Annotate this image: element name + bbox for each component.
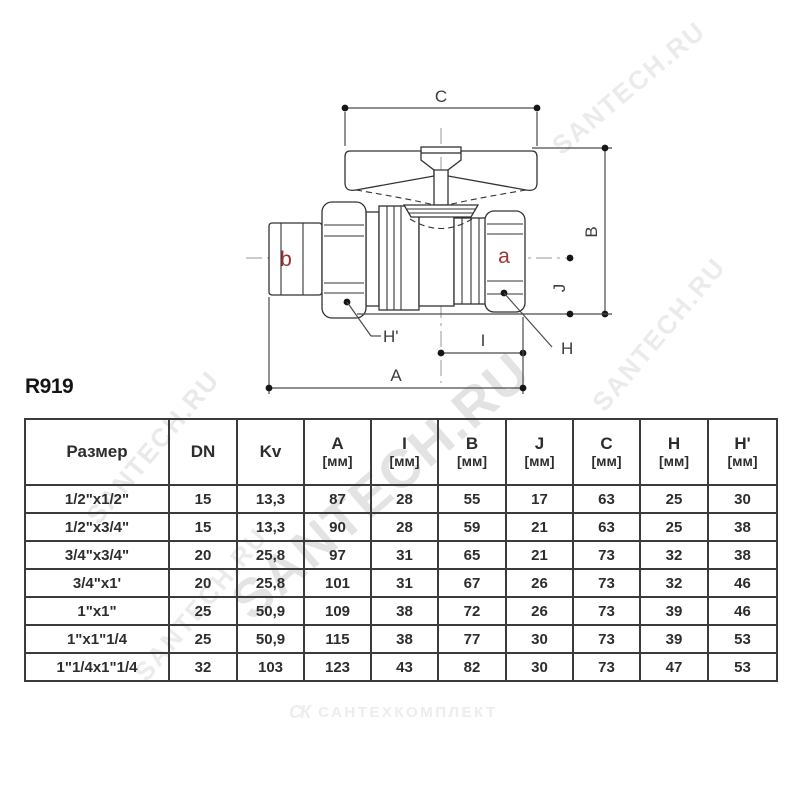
table-cell: 31 [371, 541, 438, 569]
dim-label-j: J [550, 284, 569, 293]
header-label: DN [170, 443, 236, 461]
table-cell: 20 [169, 541, 237, 569]
table-cell: 87 [304, 485, 371, 513]
header-label: B [439, 435, 505, 453]
table-cell: 50,9 [237, 625, 304, 653]
table-cell: 67 [438, 569, 506, 597]
table-cell: 15 [169, 513, 237, 541]
header-cell: I[мм] [371, 419, 438, 485]
table-cell: 38 [371, 597, 438, 625]
table-cell: 1"x1"1/4 [25, 625, 169, 653]
table-cell: 53 [708, 625, 777, 653]
table-cell: 46 [708, 597, 777, 625]
header-unit: [мм] [641, 454, 707, 469]
spec-table: РазмерDNKvA[мм]I[мм]B[мм]J[мм]C[мм]H[мм]… [24, 418, 778, 682]
dim-label-i: I [481, 331, 486, 350]
table-cell: 25 [169, 625, 237, 653]
dim-i: I [438, 331, 527, 356]
table-cell: 38 [371, 625, 438, 653]
table-cell: 1/2"x1/2" [25, 485, 169, 513]
table-cell: 90 [304, 513, 371, 541]
header-label: Размер [26, 443, 168, 461]
port-label-b: b [280, 248, 292, 271]
table-row: 1/2"x1/2"1513,387285517632530 [25, 485, 777, 513]
table-cell: 65 [438, 541, 506, 569]
table-cell: 59 [438, 513, 506, 541]
table-cell: 31 [371, 569, 438, 597]
spec-table-body: 1/2"x1/2"1513,3872855176325301/2"x3/4"15… [25, 485, 777, 681]
table-cell: 30 [708, 485, 777, 513]
table-cell: 109 [304, 597, 371, 625]
table-cell: 15 [169, 485, 237, 513]
dim-label-b: B [582, 226, 601, 237]
header-cell: A[мм] [304, 419, 371, 485]
table-cell: 30 [506, 653, 573, 681]
table-row: 1/2"x3/4"1513,390285921632538 [25, 513, 777, 541]
table-cell: 50,9 [237, 597, 304, 625]
table-cell: 20 [169, 569, 237, 597]
dim-b: B [532, 145, 612, 318]
table-cell: 13,3 [237, 485, 304, 513]
header-label: H' [709, 435, 776, 453]
header-label: A [305, 435, 370, 453]
spec-table-header: РазмерDNKvA[мм]I[мм]B[мм]J[мм]C[мм]H[мм]… [25, 419, 777, 485]
product-code: R919 [25, 375, 73, 399]
table-cell: 1"1/4x1"1/4 [25, 653, 169, 681]
header-unit: [мм] [305, 454, 370, 469]
table-cell: 73 [573, 653, 640, 681]
table-cell: 39 [640, 625, 708, 653]
table-cell: 73 [573, 541, 640, 569]
table-cell: 38 [708, 541, 777, 569]
dim-j: J [550, 255, 573, 318]
header-cell: B[мм] [438, 419, 506, 485]
header-label: Kv [238, 443, 303, 461]
table-cell: 123 [304, 653, 371, 681]
header-label: H [641, 435, 707, 453]
header-cell: DN [169, 419, 237, 485]
header-label: C [574, 435, 639, 453]
brand-name: САНТЕХКОМПЛЕКТ [318, 704, 498, 721]
valve-body [269, 147, 537, 318]
table-cell: 82 [438, 653, 506, 681]
header-label: J [507, 435, 572, 453]
table-cell: 25 [169, 597, 237, 625]
table-cell: 21 [506, 541, 573, 569]
dim-label-h: H [561, 339, 573, 358]
table-cell: 73 [573, 569, 640, 597]
table-cell: 21 [506, 513, 573, 541]
header-cell: C[мм] [573, 419, 640, 485]
dim-label-a: A [390, 366, 402, 385]
header-unit: [мм] [372, 454, 437, 469]
table-cell: 1/2"x3/4" [25, 513, 169, 541]
table-cell: 46 [708, 569, 777, 597]
header-cell: J[мм] [506, 419, 573, 485]
dim-label-h-prime: H' [383, 327, 399, 346]
table-row: 1"x1"2550,9109387226733946 [25, 597, 777, 625]
table-cell: 53 [708, 653, 777, 681]
table-row: 3/4"x3/4"2025,897316521733238 [25, 541, 777, 569]
table-cell: 97 [304, 541, 371, 569]
table-cell: 55 [438, 485, 506, 513]
table-row: 3/4"x1'2025,8101316726733246 [25, 569, 777, 597]
table-cell: 43 [371, 653, 438, 681]
table-cell: 103 [237, 653, 304, 681]
table-cell: 73 [573, 597, 640, 625]
table-cell: 25 [640, 513, 708, 541]
table-cell: 32 [169, 653, 237, 681]
table-row: 1"x1"1/42550,9115387730733953 [25, 625, 777, 653]
table-cell: 38 [708, 513, 777, 541]
table-cell: 17 [506, 485, 573, 513]
header-row: РазмерDNKvA[мм]I[мм]B[мм]J[мм]C[мм]H[мм]… [25, 419, 777, 485]
table-cell: 32 [640, 541, 708, 569]
table-cell: 101 [304, 569, 371, 597]
table-cell: 115 [304, 625, 371, 653]
table-cell: 63 [573, 513, 640, 541]
table-cell: 28 [371, 485, 438, 513]
table-cell: 1"x1" [25, 597, 169, 625]
table-cell: 25,8 [237, 541, 304, 569]
table-cell: 13,3 [237, 513, 304, 541]
header-unit: [мм] [709, 454, 776, 469]
header-cell: Размер [25, 419, 169, 485]
table-cell: 3/4"x1' [25, 569, 169, 597]
table-cell: 25 [640, 485, 708, 513]
table-cell: 47 [640, 653, 708, 681]
header-cell: H'[мм] [708, 419, 777, 485]
table-cell: 25,8 [237, 569, 304, 597]
dim-label-c: C [435, 87, 447, 106]
header-cell: Kv [237, 419, 304, 485]
table-cell: 63 [573, 485, 640, 513]
brand-mark-icon: СК [289, 702, 309, 723]
table-cell: 3/4"x3/4" [25, 541, 169, 569]
table-cell: 39 [640, 597, 708, 625]
table-cell: 77 [438, 625, 506, 653]
valve-drawing: C B J H H' [0, 0, 800, 420]
table-cell: 32 [640, 569, 708, 597]
header-label: I [372, 435, 437, 453]
table-row: 1"1/4x1"1/432103123438230734753 [25, 653, 777, 681]
male-end [269, 223, 322, 295]
table-cell: 26 [506, 569, 573, 597]
header-unit: [мм] [439, 454, 505, 469]
header-unit: [мм] [574, 454, 639, 469]
table-cell: 30 [506, 625, 573, 653]
table-cell: 72 [438, 597, 506, 625]
table-cell: 73 [573, 625, 640, 653]
footer-logo: СК САНТЕХКОМПЛЕКТ [289, 702, 498, 723]
table-cell: 26 [506, 597, 573, 625]
header-cell: H[мм] [640, 419, 708, 485]
table-cell: 28 [371, 513, 438, 541]
header-unit: [мм] [507, 454, 572, 469]
port-label-a: a [498, 245, 510, 268]
